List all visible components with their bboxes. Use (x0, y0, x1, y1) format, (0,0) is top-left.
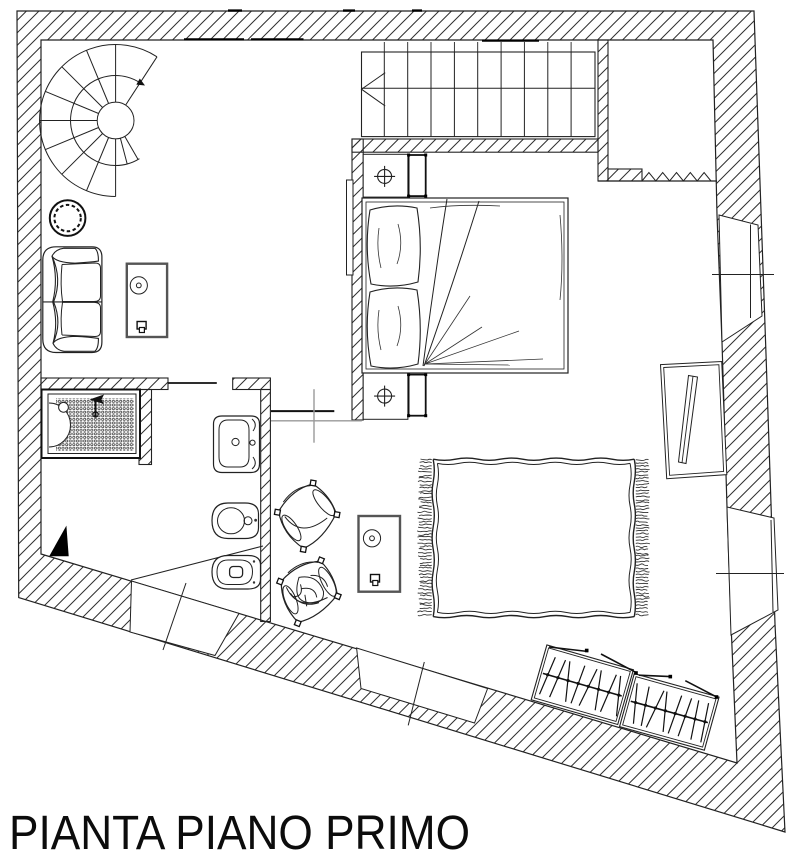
svg-text:PIANTA PIANO PRIMO: PIANTA PIANO PRIMO (9, 806, 470, 860)
